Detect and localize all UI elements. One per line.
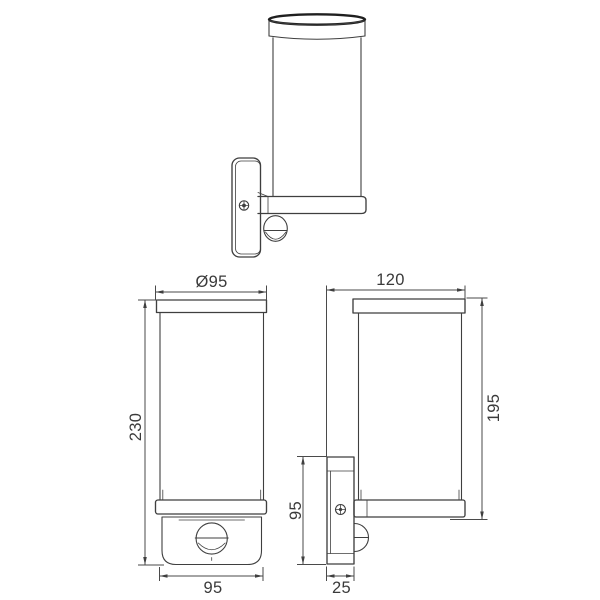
perspective-view	[232, 14, 366, 257]
side-height-dimension: 195	[450, 298, 503, 520]
side-bracket-depth-dimension-label: 25	[332, 579, 351, 597]
sensor-knob	[264, 216, 288, 242]
side-bracket-height-dimension-label: 95	[287, 501, 305, 520]
dimension-arrow	[160, 574, 168, 577]
front-diameter-dimension: Ø95	[156, 273, 267, 300]
dimension-arrow	[143, 300, 147, 308]
front-view: Ø95 230 95	[127, 273, 267, 597]
front-height-dimension-label: 230	[127, 413, 145, 441]
dimension-arrow	[480, 512, 484, 520]
front-sensor-dome	[198, 543, 225, 550]
dimension-arrow	[156, 290, 164, 293]
dimension-arrow	[346, 574, 354, 577]
dimension-arrow	[327, 574, 335, 577]
dimension-arrow	[457, 288, 465, 291]
bracket-ring	[258, 197, 366, 214]
side-view: 120 195 95 25	[287, 271, 503, 597]
cap-bottom-edge	[269, 36, 365, 39]
wall-light-technical-drawing: Ø95 230 95	[0, 0, 600, 600]
front-height-dimension: 230	[127, 300, 164, 565]
dimension-arrow	[327, 288, 335, 291]
dimension-arrow	[301, 557, 305, 565]
technical-drawing-page: Ø95 230 95	[0, 0, 600, 600]
front-width-dimension: 95	[160, 567, 264, 597]
front-width-dimension-label: 95	[204, 579, 223, 597]
front-cap	[157, 300, 267, 313]
screw-head	[239, 201, 248, 210]
front-sensor	[195, 523, 228, 561]
dimension-arrow	[301, 457, 305, 465]
dimension-arrow	[255, 574, 263, 577]
side-bracket-height-dimension: 95	[287, 457, 326, 565]
side-screw-head	[336, 505, 346, 515]
side-cap	[353, 299, 465, 313]
side-sensor-knob	[355, 524, 369, 552]
side-bracket-band	[354, 500, 465, 517]
side-bracket-depth-dimension: 25	[327, 567, 355, 598]
front-bracket-band	[156, 500, 267, 514]
dimension-arrow	[480, 298, 484, 306]
sensor-knob-outline	[264, 216, 288, 242]
wall-plate	[232, 158, 261, 257]
front-diameter-dimension-label: Ø95	[195, 273, 227, 291]
dimension-arrow	[259, 290, 267, 293]
dimension-arrow	[143, 557, 147, 565]
side-depth-dimension-label: 120	[376, 271, 404, 289]
side-height-dimension-label: 195	[485, 394, 503, 422]
